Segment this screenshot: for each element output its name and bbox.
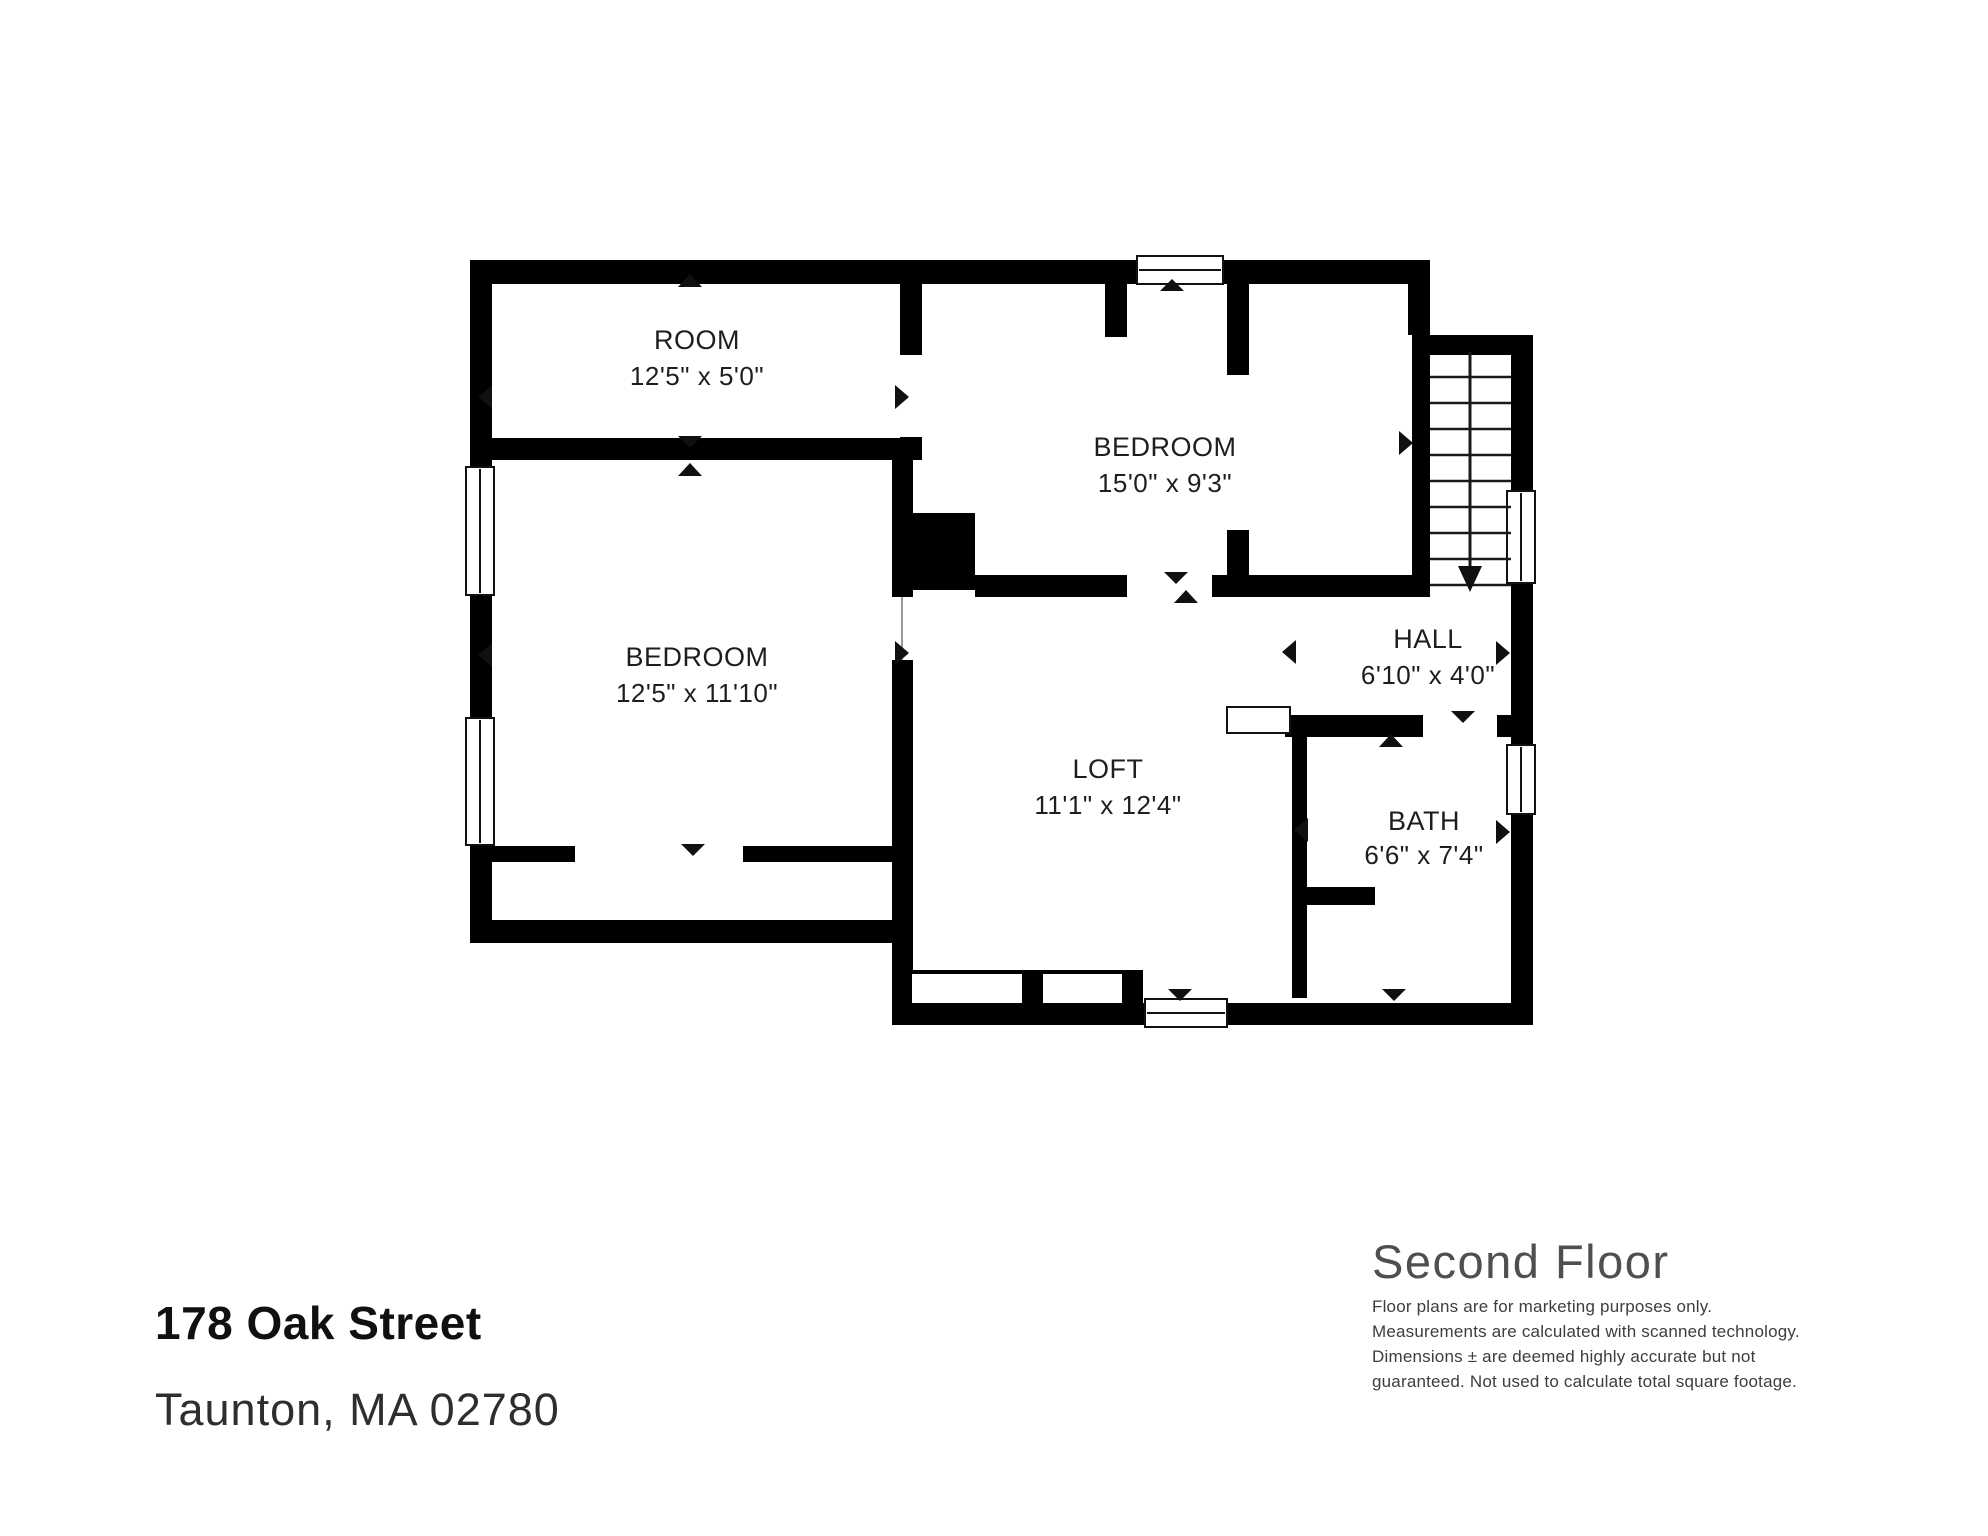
stair-down-arrow	[1458, 566, 1482, 592]
arrow-down-icon	[681, 844, 705, 856]
svg-text:12'5" x 11'10": 12'5" x 11'10"	[616, 678, 778, 708]
svg-text:BATH: BATH	[1388, 806, 1460, 836]
svg-text:ROOM: ROOM	[654, 325, 740, 355]
svg-text:12'5" x 5'0": 12'5" x 5'0"	[630, 361, 764, 391]
window	[466, 467, 494, 595]
svg-text:BEDROOM: BEDROOM	[625, 642, 768, 672]
window	[466, 718, 494, 845]
arrow-up-icon	[1174, 590, 1198, 603]
svg-text:15'0" x 9'3": 15'0" x 9'3"	[1098, 468, 1232, 498]
window	[1137, 256, 1223, 284]
arrow-right-icon	[1399, 431, 1413, 455]
svg-text:LOFT: LOFT	[1072, 754, 1143, 784]
disclaimer-line: Dimensions ± are deemed highly accurate …	[1372, 1344, 1800, 1369]
room-label-hall: HALL 6'10" x 4'0"	[1361, 624, 1495, 690]
arrow-right-icon	[1496, 641, 1510, 665]
window	[1507, 491, 1535, 583]
svg-text:6'10" x 4'0": 6'10" x 4'0"	[1361, 660, 1495, 690]
room-label-room: ROOM 12'5" x 5'0"	[630, 325, 764, 391]
arrow-down-icon	[1382, 989, 1406, 1001]
arrow-right-icon	[1496, 820, 1510, 844]
floor-plan-page: ROOM 12'5" x 5'0" BEDROOM 15'0" x 9'3" B…	[0, 0, 1988, 1536]
disclaimer-line: Floor plans are for marketing purposes o…	[1372, 1294, 1800, 1319]
disclaimer-line: guaranteed. Not used to calculate total …	[1372, 1369, 1800, 1394]
loft-niches	[912, 974, 1122, 1003]
staircase	[1430, 352, 1511, 592]
arrow-down-icon	[1164, 572, 1188, 584]
arrow-down-icon	[1451, 711, 1475, 723]
linen-niche	[1227, 707, 1290, 733]
svg-text:BEDROOM: BEDROOM	[1093, 432, 1236, 462]
address-line2: Taunton, MA 02780	[155, 1384, 560, 1436]
arrow-left-icon	[1282, 640, 1296, 664]
svg-text:HALL: HALL	[1393, 624, 1463, 654]
disclaimer-line: Measurements are calculated with scanned…	[1372, 1319, 1800, 1344]
window	[1507, 745, 1535, 814]
window	[1145, 999, 1227, 1027]
address-line1: 178 Oak Street	[155, 1296, 482, 1350]
room-label-bedroom-top: BEDROOM 15'0" x 9'3"	[1093, 432, 1236, 498]
arrow-up-icon	[678, 463, 702, 476]
floor-title: Second Floor	[1372, 1234, 1670, 1289]
svg-text:6'6" x 7'4": 6'6" x 7'4"	[1364, 840, 1483, 870]
arrow-right-icon	[895, 385, 909, 409]
svg-text:11'1" x 12'4": 11'1" x 12'4"	[1034, 790, 1181, 820]
room-label-loft: LOFT 11'1" x 12'4"	[1034, 754, 1181, 820]
disclaimer-text: Floor plans are for marketing purposes o…	[1372, 1294, 1800, 1394]
room-label-bath: BATH 6'6" x 7'4"	[1364, 806, 1483, 870]
room-label-bedroom-left: BEDROOM 12'5" x 11'10"	[616, 642, 778, 708]
